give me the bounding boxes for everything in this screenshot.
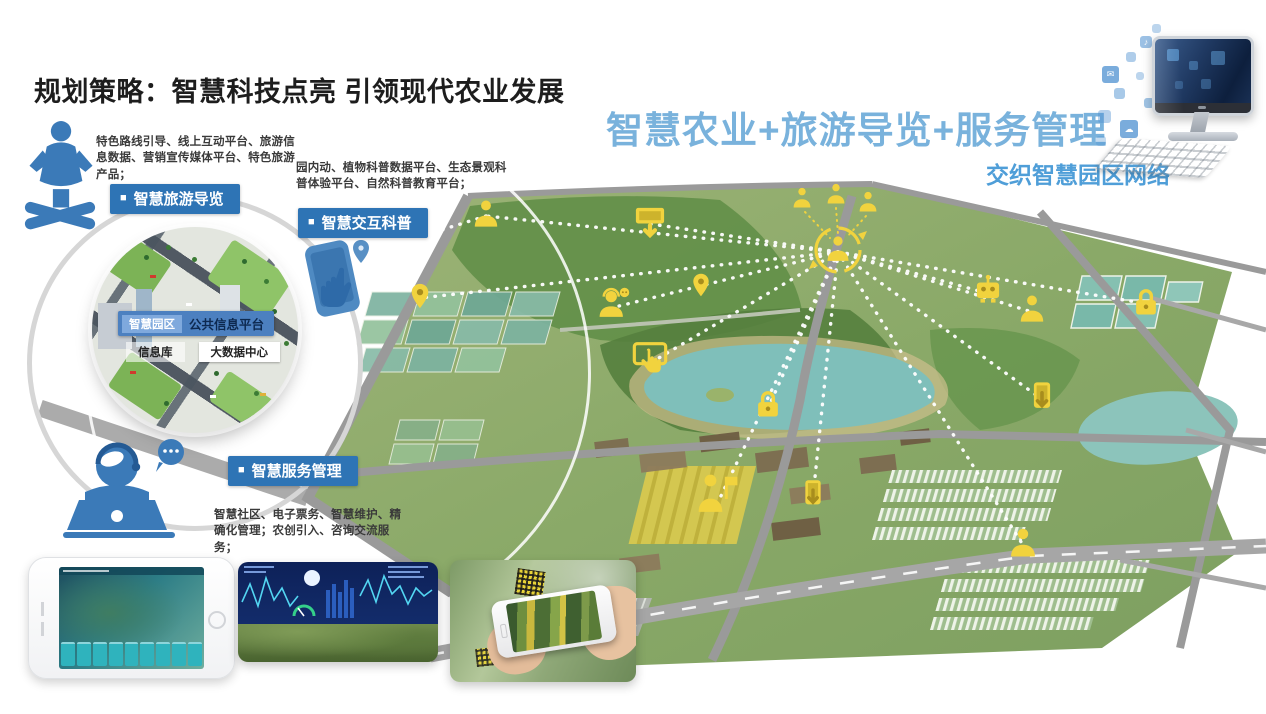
- hand-touch-icon: [294, 236, 396, 336]
- bullet-square-icon: ■: [238, 465, 245, 476]
- app-square-icon: [1096, 136, 1106, 146]
- lake-island: [706, 388, 734, 402]
- bullet-square-icon: ■: [308, 217, 315, 228]
- badge-label: 智慧服务管理: [252, 460, 342, 481]
- service-desc: 智慧社区、电子票务、智慧维护、精确化管理；农创引入、咨询交流服务；: [214, 507, 412, 557]
- service-desk-icon: [52, 436, 204, 548]
- app-title-bar: [59, 567, 204, 575]
- app-button: [188, 642, 202, 666]
- app-square-icon: [1152, 24, 1161, 33]
- phone-mockup: [28, 557, 235, 679]
- app-square-icon: [1136, 72, 1144, 80]
- app-button: [109, 642, 123, 666]
- app-button: [77, 642, 91, 666]
- cloud-icon: ☁: [1120, 120, 1138, 138]
- app-square-icon: [1098, 110, 1111, 123]
- slide-canvas: 智慧园区 公共信息平台 信息库 大数据中心 规划策略：智慧科技点亮 引领现代农业…: [0, 0, 1266, 714]
- app-button: [93, 642, 107, 666]
- music-icon: ♪: [1140, 36, 1152, 48]
- inset-trees: [122, 249, 127, 254]
- app-square-icon: [1189, 61, 1198, 70]
- monitor-screen: [1152, 36, 1254, 116]
- app-button: [140, 642, 154, 666]
- badge-smart-service: ■ 智慧服务管理: [228, 456, 358, 486]
- camera-viewfinder: [506, 590, 603, 652]
- keyboard: [1094, 138, 1232, 178]
- inset-cars: [150, 275, 156, 278]
- badge-label: 智慧交互科普: [322, 212, 412, 233]
- qr-tag: [514, 568, 545, 598]
- bullet-square-icon: ■: [120, 193, 127, 204]
- headline: 智慧农业+旅游导览+服务管理: [606, 100, 1107, 154]
- app-square-icon: [1175, 81, 1183, 89]
- science-desc: 园内动、植物科普数据平台、生态景观科普体验平台、自然科普教育平台；: [296, 160, 518, 193]
- smart-park-badge: 智慧园区: [122, 315, 182, 333]
- app-square-icon: [1126, 52, 1136, 62]
- app-button: [125, 642, 139, 666]
- smart-park-inset: 智慧园区 公共信息平台 信息库 大数据中心: [92, 227, 298, 433]
- phone-side-button: [500, 623, 508, 638]
- info-db-label: 信息库: [126, 342, 185, 362]
- dashboard-mockup: [238, 562, 438, 662]
- page-title: 规划策略：智慧科技点亮 引领现代农业发展: [34, 70, 565, 109]
- tablet-arrow-icon: [805, 480, 820, 504]
- public-info-platform-label: 智慧园区 公共信息平台: [118, 311, 274, 336]
- data-labels-row: 信息库 大数据中心: [126, 342, 280, 362]
- app-button: [172, 642, 186, 666]
- app-button: [61, 642, 75, 666]
- app-button: [156, 642, 170, 666]
- big-data-center-label: 大数据中心: [199, 342, 281, 362]
- app-square-icon: [1167, 49, 1179, 61]
- dashboard-screen: [238, 562, 438, 624]
- mail-icon: ✉: [1102, 66, 1119, 83]
- tablet-arrow-icon: [1034, 382, 1050, 408]
- badge-smart-science: ■ 智慧交互科普: [298, 208, 428, 238]
- phone-screen: [59, 567, 204, 669]
- computer-icon: ✉ ☁ ♪: [1096, 24, 1266, 182]
- home-button: [208, 611, 226, 629]
- monitor-stand: [1190, 112, 1210, 134]
- app-square-icon: [1201, 79, 1211, 89]
- ar-photo-mockup: [450, 560, 636, 682]
- platform-label: 公共信息平台: [189, 314, 264, 333]
- volume-buttons: [41, 602, 44, 616]
- badge-label: 智慧旅游导览: [134, 188, 224, 209]
- monitor-base: [1168, 132, 1238, 141]
- tourism-desc: 特色路线引导、线上互动平台、旅游信息数据、营销宣传媒体平台、特色旅游产品；: [96, 134, 302, 184]
- terrain-model: [238, 624, 438, 662]
- app-square-icon: [1114, 88, 1125, 99]
- app-button-row: [61, 642, 202, 666]
- app-square-icon: [1211, 51, 1225, 65]
- dashboard-charts: [238, 562, 438, 624]
- badge-smart-tourism: ■ 智慧旅游导览: [110, 184, 240, 214]
- tour-guide-icon: [24, 118, 96, 238]
